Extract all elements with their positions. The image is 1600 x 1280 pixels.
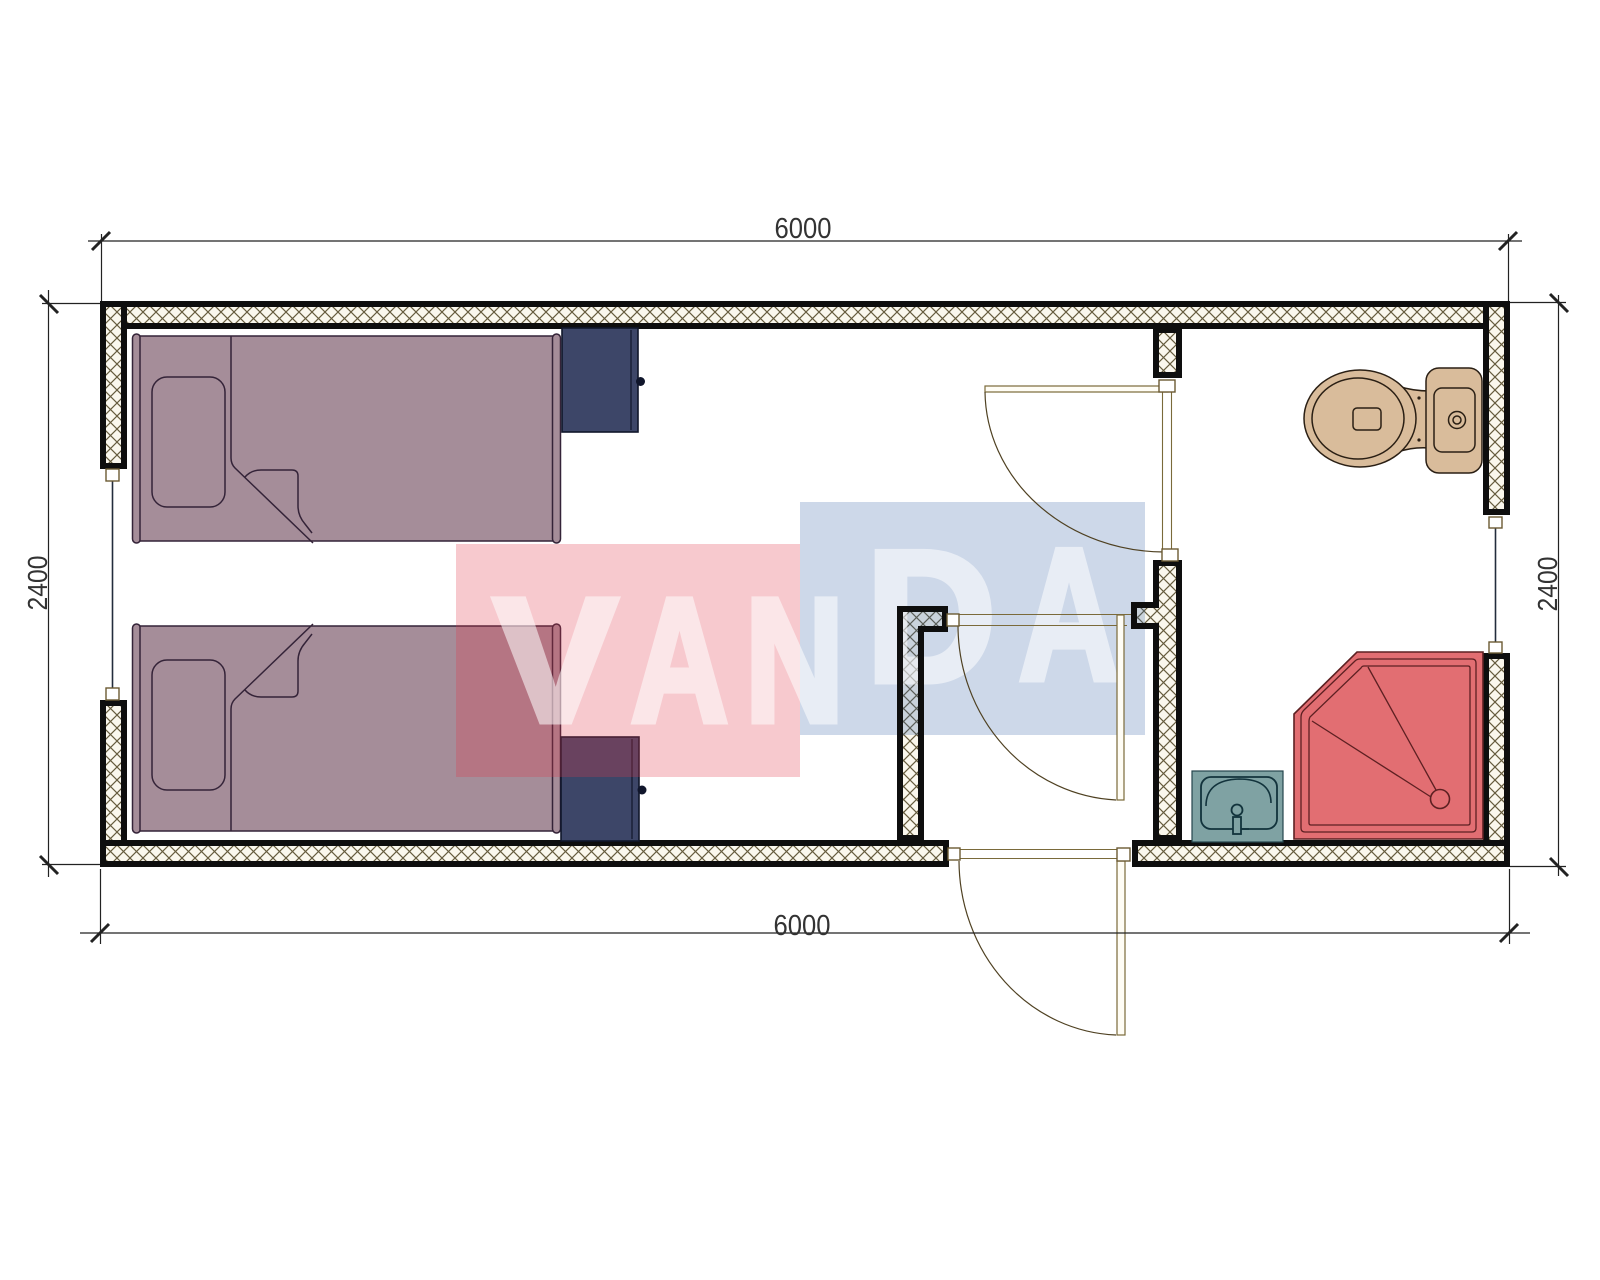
svg-text:6000: 6000: [774, 910, 831, 942]
svg-text:D: D: [866, 512, 996, 721]
svg-text:2400: 2400: [1532, 557, 1563, 612]
svg-text:2400: 2400: [22, 556, 53, 611]
svg-text:V: V: [494, 563, 617, 759]
svg-text:N: N: [745, 563, 844, 759]
svg-text:A: A: [631, 563, 728, 759]
svg-text:6000: 6000: [775, 213, 832, 245]
